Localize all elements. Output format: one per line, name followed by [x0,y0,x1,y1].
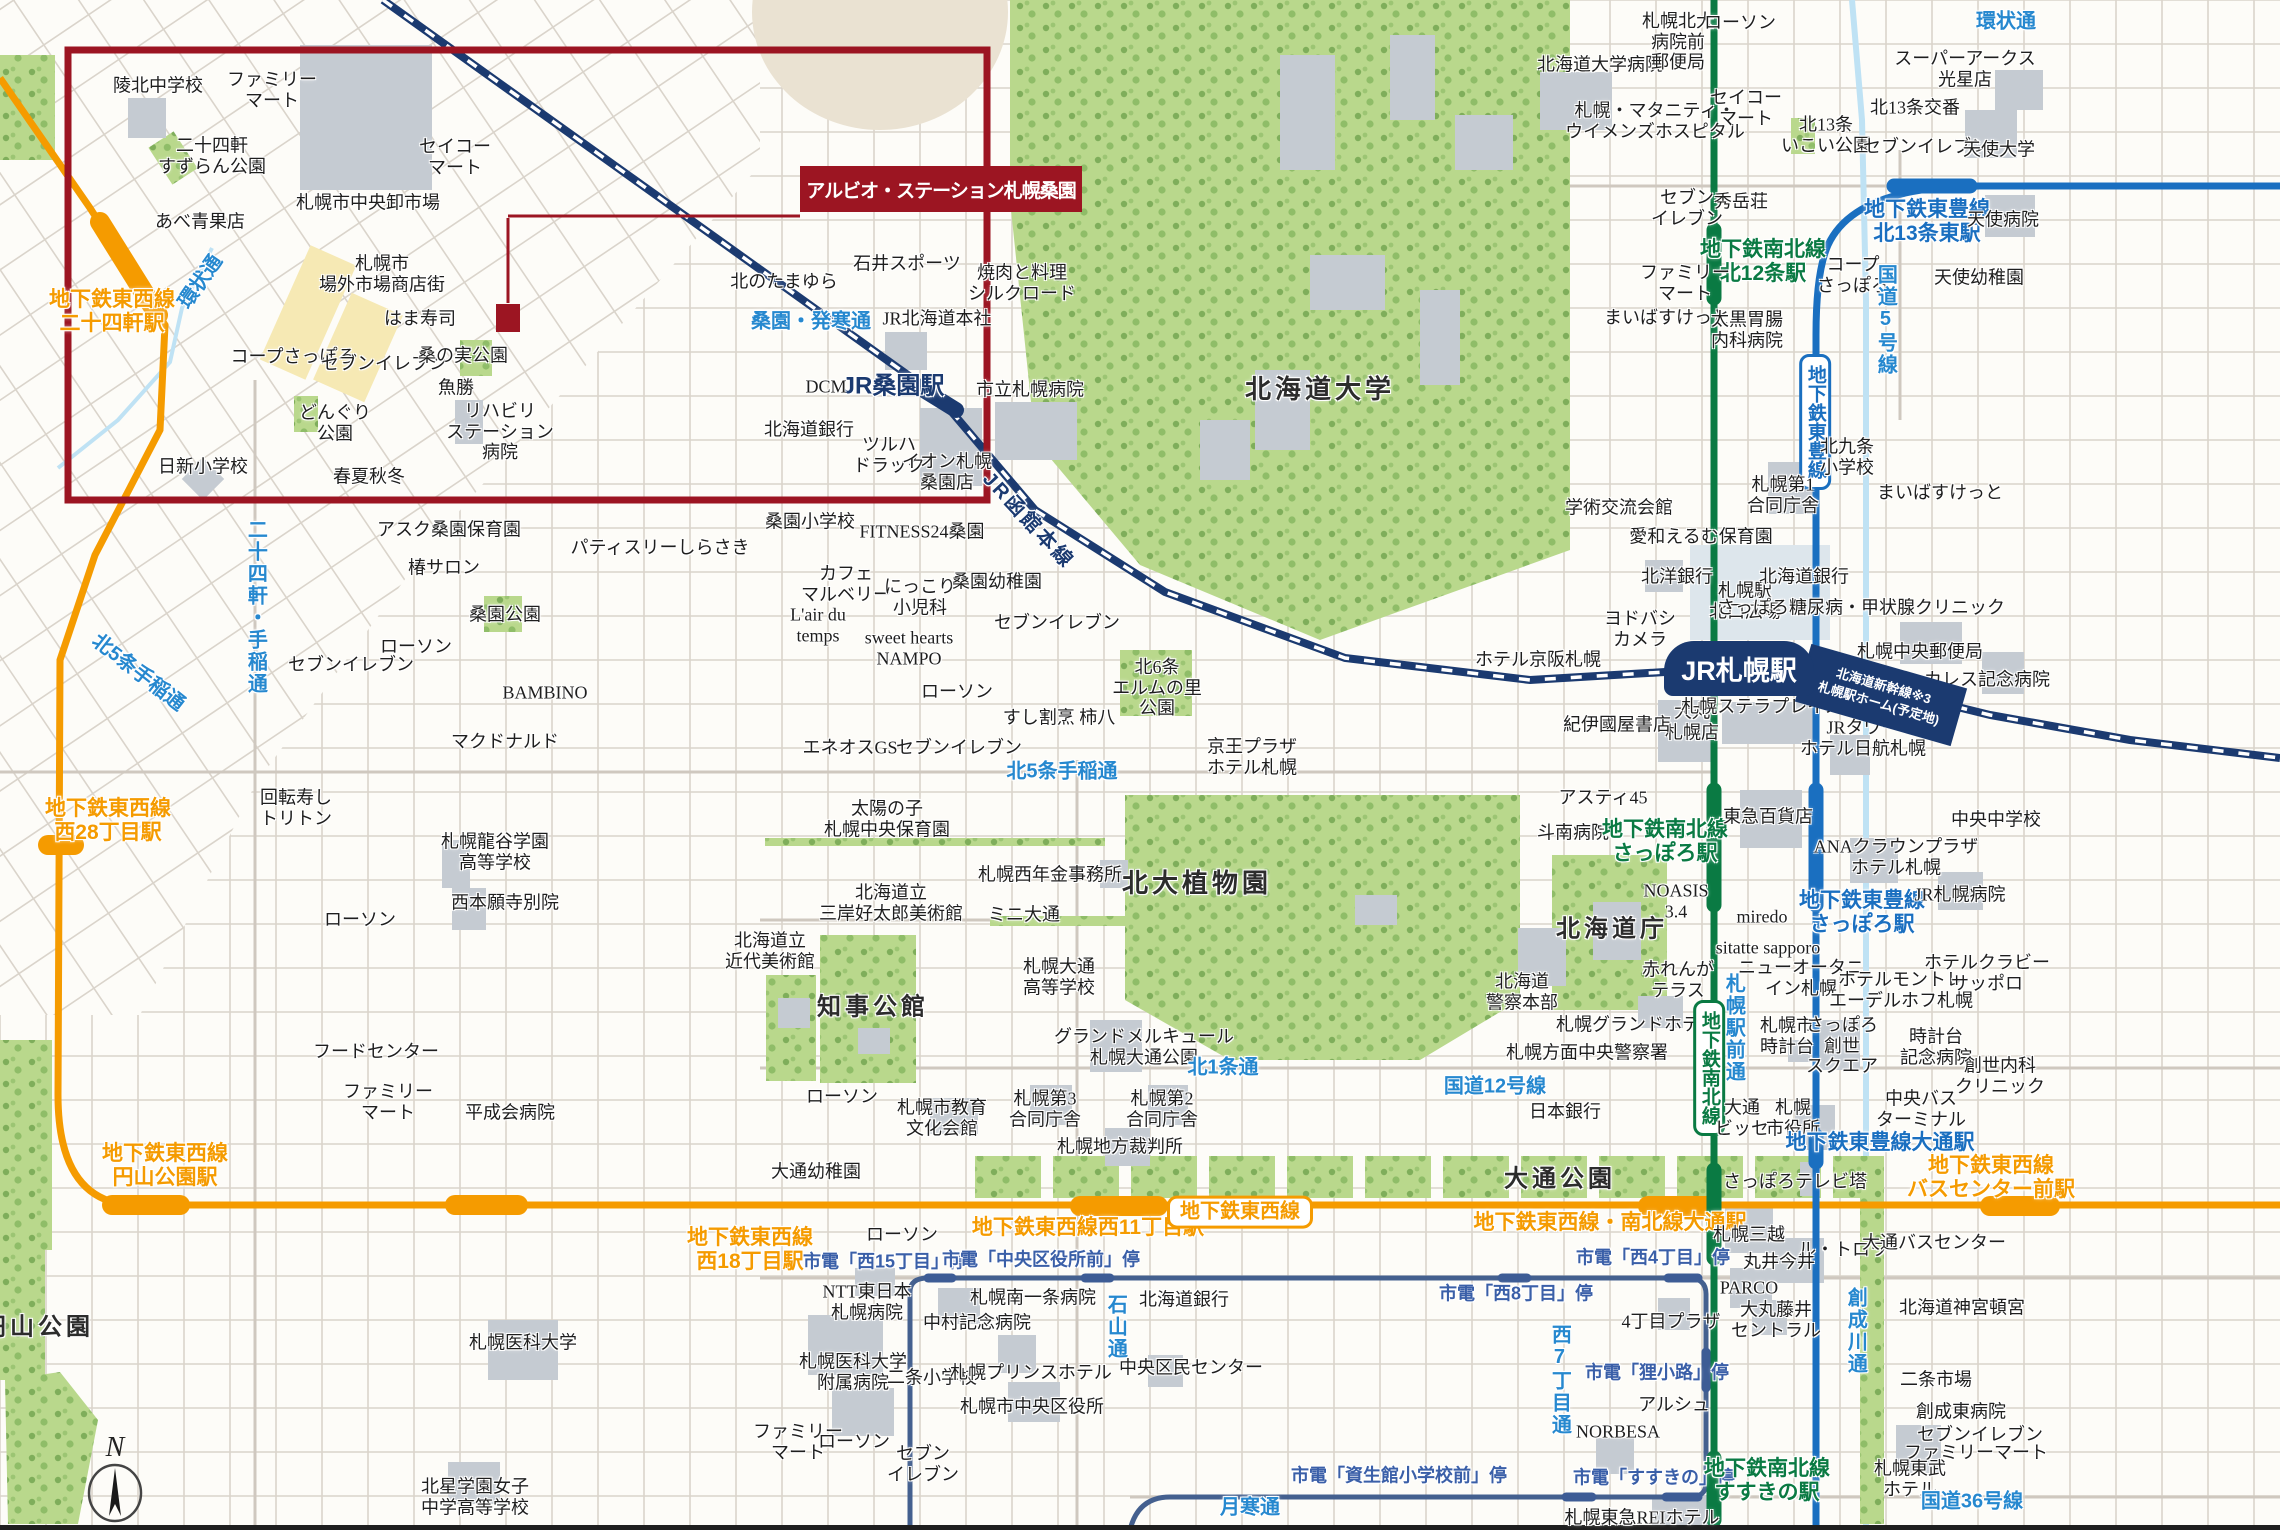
map-label: 札幌グランドホテル [1556,1015,1718,1036]
map-label: セブンイレブン [288,655,414,676]
map-label: DCM [805,377,846,398]
map-label: 地下鉄南北線 北12条駅 [1700,238,1826,286]
map-label: ファミリー マート [1640,262,1730,303]
map-label: NORBESA [1576,1422,1660,1443]
map-label: ファミリー マート [227,69,317,110]
map-label: 札幌三越 [1713,1225,1785,1246]
map-label: ファミリー マート [753,1421,843,1462]
map-label: 札幌方面中央警察署 [1506,1043,1668,1064]
map-label: 回転寿し トリトン [260,787,332,828]
map-label: さっぽろ糖尿病・甲状腺クリニック [1717,598,2005,619]
map-label: セブンイレブン [1917,1425,2043,1446]
map-label: コープさっぽろ [231,347,356,368]
map-label: セブン イレブン [887,1443,959,1484]
map-label: 市電「中央区役所前」停 [942,1250,1140,1271]
map-label: 札幌第1 合同庁舎 [1747,474,1819,515]
map-label: 斗南病院 [1537,823,1609,844]
map-label: 東急百貨店 [1723,807,1813,828]
map-label: 北海道庁 [1556,916,1668,943]
map-label: 札幌・マタニティ・ ウイメンズホスピタル [1565,100,1745,141]
map-label: ホテルクラビー サッポロ [1924,952,2050,993]
map-label: 札幌市中央卸市場 [296,193,440,214]
map-label: セイコー マート [1710,87,1782,128]
map-label: パティスリーしらさき [571,538,750,559]
map-label: 北洋銀行 [1641,567,1713,588]
map-label: 中央中学校 [1951,810,2041,831]
map-label: 国道36号線 [1921,1491,2023,1514]
map-label: アスク桑園保育園 [377,520,521,541]
map-label: あべ青果店 [155,212,245,233]
map-label: 丸井今井 [1743,1252,1815,1273]
map-label: 4丁目プラザ [1622,1312,1721,1333]
sapporo-access-map: 陵北中学校ファミリー マート二十四軒 すずらん公園あべ青果店札幌市中央卸市場セイ… [0,0,2280,1530]
map-label: 時計台 記念病院 [1900,1026,1972,1067]
map-label: 北6条 エルムの里 公園 [1112,657,1202,719]
map-label: 桑園・発寒通 [751,311,871,334]
map-label: 地下鉄南北線 さっぽろ駅 [1602,818,1728,866]
map-label: コープ さっぽろ [1817,254,1889,295]
map-label: ヨドバシ カメラ [1604,608,1676,649]
map-label: 地下鉄東豊線 さっぽろ駅 [1799,889,1925,937]
map-label: 北海道神宮頓宮 [1899,1298,2025,1319]
map-label: どんぐり 公園 [299,402,371,443]
map-label: 札幌医科大学 附属病院 [799,1351,907,1392]
map-label: はま寿司 [384,309,456,330]
map-label: スーパーアークス 光星店 [1894,48,2035,89]
map-label: 大通幼稚園 [771,1162,861,1183]
map-label: 西7丁目通 [1548,1324,1571,1436]
map-label: ローソン [866,1225,938,1246]
map-label: ANAクラウンプラザ ホテル札幌 [1814,836,1978,877]
map-label: ローソン [921,682,993,703]
map-label: 札幌市 時計台 [1760,1015,1814,1056]
map-label: 国道12号線 [1444,1076,1546,1099]
map-label: 地下鉄東豊線大通駅 [1786,1131,1975,1155]
map-label: 札幌市教育 文化会館 [897,1097,987,1138]
map-label: ミニ大通 [988,905,1060,926]
map-label: 札幌中央郵便局 [1857,642,1983,663]
map-label: イオン札幌 桑園店 [902,451,992,492]
map-label: 市電「西15丁目」停 [803,1252,967,1273]
map-label: 環状通 [1976,11,2036,34]
map-label: ローソン [324,910,396,931]
map-label: ル・トロワ [1798,1240,1888,1261]
map-label: 知事公館 [817,994,929,1021]
map-label: PARCO [1720,1278,1778,1299]
map-label: FITNESS24桑園 [859,522,984,543]
map-label: 札幌駅前通 [1722,973,1745,1083]
property-name-banner: アルビオ・ステーション札幌桑園 [800,166,1082,212]
map-label: エネオスGS [802,738,897,759]
map-label: さっぽろテレビ塔 [1723,1172,1867,1193]
map-label: まいばすけっと [1877,483,2003,504]
map-label: フードセンター [313,1042,439,1063]
map-label: 環状通 [174,251,227,313]
compass-needle-icon [86,1462,144,1524]
map-label: 京王プラザ ホテル札幌 [1207,736,1297,777]
map-label: NTT東日本 札幌病院 [823,1281,912,1322]
map-label: 学術交流会館 [1565,498,1673,519]
map-label: 創成東病院 [1916,1402,2006,1423]
map-label: 地下鉄東西線 バスセンター前駅 [1907,1154,2075,1202]
map-label: 札幌東武 ホテル [1874,1458,1946,1499]
map-label: ローソン [380,637,452,658]
map-label: 西本願寺別院 [451,893,559,914]
map-label: 桑園小学校 [765,512,855,533]
map-label: 北海道銀行 [1759,567,1849,588]
map-label: 春夏秋冬 [333,467,405,488]
map-label: 札幌第3 合同庁舎 [1009,1088,1081,1129]
map-label: 札幌大通 高等学校 [1023,956,1095,997]
map-label: 創成川通 [1844,1287,1867,1375]
map-label-layer: 陵北中学校ファミリー マート二十四軒 すずらん公園あべ青果店札幌市中央卸市場セイ… [0,0,2280,1530]
map-label: 中央バス ターミナル [1876,1088,1966,1129]
map-label: セブンイレブン [994,613,1120,634]
map-label: 地下鉄東豊線 [1799,354,1831,490]
map-label: ホテルモントレ エーデルホフ札幌 [1829,969,1973,1010]
map-label: 札幌医科大学 [469,1333,577,1354]
map-label: セブンイレブン [321,354,447,375]
map-label: 市電「狸小路」停 [1585,1363,1729,1384]
map-label: sitatte sapporo [1716,938,1820,959]
map-label: グランドメルキュール 札幌大通公園 [1054,1026,1234,1067]
map-label: 太黒胃腸 内科病院 [1711,309,1783,350]
map-label: ローソン [806,1087,878,1108]
map-label: 北のたまゆら [730,272,837,293]
map-label: BAMBINO [502,683,587,704]
map-label: 北13条交番 [1870,98,1960,119]
map-label: 北海道立 三岸好太郎美術館 [819,882,963,923]
map-label: 愛和えるむ保育園 [1629,527,1772,548]
map-label: 北1条通 [1187,1057,1258,1080]
map-label: 札幌第2 合同庁舎 [1126,1088,1198,1129]
map-label: セイコー マート [419,136,491,177]
map-label: 地下鉄南北線 [1693,1000,1725,1136]
map-label: 地下鉄南北線 すすきの駅 [1704,1457,1830,1505]
map-label: 札幌市 場外市場商店街 [319,253,445,294]
map-label: 紀伊國屋書店 [1563,715,1671,736]
map-label: NOASIS 3.4 [1643,880,1708,921]
map-label: セブンイレブン [1863,137,1989,158]
map-label: 札幌市中央区役所 [960,1397,1104,1418]
map-label: 石井スポーツ [853,254,961,275]
map-label: 椿サロン [408,558,480,579]
map-label: 北海道大学病院 [1537,55,1663,76]
map-label: マクドナルド [451,732,559,753]
map-label: 地下鉄東西線 西28丁目駅 [45,797,171,845]
map-label: ファミリー マート [343,1081,433,1122]
map-label: 北海道 警察本部 [1486,971,1558,1012]
map-label: JR札幌病院 [1914,885,2005,906]
map-label: 市電「西4丁目」停 [1576,1248,1730,1269]
jr-sapporo-station-banner: JR札幌駅 [1664,641,1814,696]
map-label: ローソン [1704,13,1776,34]
map-label: 札幌 市役所 [1766,1097,1820,1138]
map-label: 市立札幌病院 [976,380,1084,401]
map-label: 円山公園 [0,1314,94,1341]
map-label: 札幌西年金事務所 [978,865,1122,886]
map-label: 中央区民センター [1119,1358,1263,1379]
map-label: 地下鉄東西線 二十四軒駅 [49,288,175,336]
map-label: 月寒通 [1220,1497,1280,1520]
map-label: 平成会病院 [465,1103,555,1124]
map-label: カフェ マルベリー [801,563,891,604]
map-label: 焼肉と料理 シルクロード [968,262,1076,303]
map-label: 札幌駅 北口広場 [1709,580,1781,621]
map-label: JR桑園駅 [842,372,945,399]
map-label: 地下鉄東西線 西18丁目駅 [687,1226,813,1274]
map-label: ニューオータニ イン札幌 [1738,957,1864,998]
map-label: 市電「資生館小学校前」停 [1291,1466,1507,1487]
map-label: 赤れんが テラス [1642,959,1714,1000]
map-label: 地下鉄東豊線 北13条東駅 [1864,198,1990,246]
map-label: 二十四軒 すずらん公園 [158,135,266,176]
map-label: まいばすけっと [1604,308,1730,329]
map-label: 大通バスセンター [1862,1233,2006,1254]
map-label: すし割烹 柿八 [1003,708,1116,729]
map-label: 札幌東急REIホテル [1565,1508,1720,1529]
map-label: 日本銀行 [1529,1102,1601,1123]
map-label: 北九条 小学校 [1820,436,1874,477]
map-label: セブンイレブン [896,738,1022,759]
map-label: 桑の実公園 [418,346,508,367]
map-label: 地下鉄東西線西11丁目駅 [972,1216,1204,1240]
map-label: 二十四軒・手稲通 [244,519,267,695]
map-label: 石山通 [1104,1294,1127,1360]
map-label: セブン イレブン [1651,187,1723,228]
map-label: miredo [1737,907,1788,928]
map-label: 天使幼稚園 [1934,268,2024,289]
map-label: 地下鉄東西線・南北線大通駅 [1474,1211,1747,1235]
map-label: 北5条手稲通 [87,630,189,716]
map-label: 北海道銀行 [764,420,854,441]
compass-north-label: N [86,1432,144,1462]
map-label: 陵北中学校 [113,76,203,97]
map-label: JR北海道本社 [882,309,991,330]
map-label: sweet hearts NAMPO [865,627,953,668]
map-label: 札幌龍谷学園 高等学校 [441,831,549,872]
map-label: 北5条手稲通 [1006,761,1117,784]
map-label: アルシュ [1638,1395,1710,1416]
map-label: 魚勝 [438,378,474,399]
map-label: 国道5号線 [1874,264,1897,376]
map-label: 日新小学校 [158,457,248,478]
map-label: さっぽろ 創世 スクエア [1806,1015,1878,1077]
map-label: ローソン [818,1432,890,1453]
map-label: 札幌北大 病院前 郵便局 [1642,11,1714,73]
map-label: 地下鉄東西線 [1167,1196,1313,1229]
compass-rose: N [86,1432,144,1524]
map-label: 大通公園 [1504,1166,1616,1193]
map-label: L'air du temps [790,604,846,645]
map-label: 札幌南一条病院 [970,1288,1096,1309]
map-label: ツルハ ドラック [853,434,925,475]
map-label: 秀岳荘 [1714,192,1768,213]
map-label: 北海道大学 [1245,375,1395,405]
map-label: 市電「すすきの」停 [1573,1468,1735,1489]
map-label: 大丸 札幌店 [1665,701,1719,742]
map-label: JR函館本線 [978,468,1079,574]
map-label: 桑園幼稚園 [952,572,1042,593]
map-label: ホテル京阪札幌 [1475,650,1601,671]
map-label: 札幌地方裁判所 [1057,1137,1183,1158]
map-label: 北海道立 近代美術館 [725,930,815,971]
map-label: 創世内科 クリニック [1955,1055,2045,1096]
map-label: 北大植物園 [1122,869,1272,899]
map-label: 二条小学校 [887,1368,977,1389]
map-label: 桑園公園 [469,605,541,626]
map-label: ファミリーマート [1904,1443,2048,1464]
map-label: 市電「西8丁目」停 [1439,1284,1593,1305]
map-label: 大丸藤井 セントラル [1731,1299,1821,1340]
map-label: アスティ45 [1559,788,1648,809]
map-label: リハビリ ステーション 病院 [446,401,554,463]
map-label: 札幌プリンスホテル [950,1363,1112,1384]
map-label: 北星学園女子 中学高等学校 [421,1476,529,1517]
map-label: 地下鉄東西線 円山公園駅 [102,1142,228,1190]
map-label: 二条市場 [1900,1370,1972,1391]
map-label: 天使大学 [1963,140,2035,161]
map-label: 北海道銀行 [1139,1290,1229,1311]
map-label: 中村記念病院 [923,1313,1031,1334]
map-label: 大通 ビッセ [1715,1097,1769,1138]
map-label: 北13条 いこい公園 [1781,114,1871,155]
map-label: 太陽の子 札幌中央保育園 [824,798,950,839]
map-label: 天使病院 [1967,210,2039,231]
map-label: にっこり 小児科 [884,576,956,617]
